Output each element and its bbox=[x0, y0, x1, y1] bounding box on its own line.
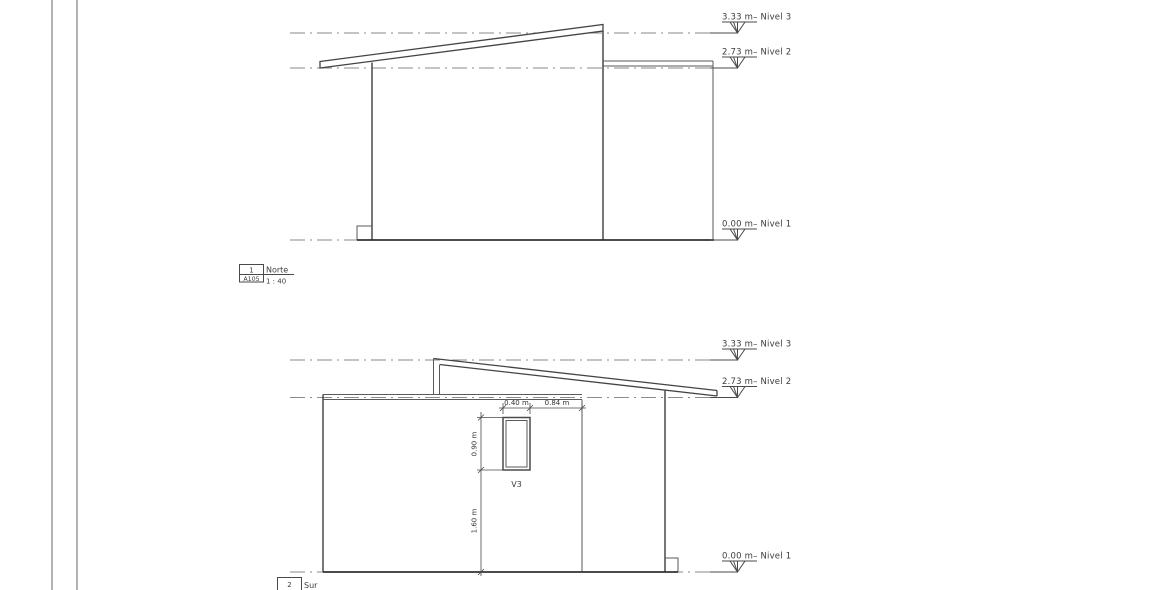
dim-window-offset: 0.84 m bbox=[545, 399, 570, 407]
sheet-border bbox=[52, 0, 77, 590]
sur-level-marker-3: 3.33 m– Nivel 3 bbox=[710, 340, 791, 361]
norte-level-1-label: 0.00 m– Nivel 1 bbox=[722, 220, 791, 230]
norte-level-marker-2: 2.73 m– Nivel 2 bbox=[710, 48, 791, 69]
window-v3-label: V3 bbox=[511, 480, 522, 489]
dim-sill-height: 1.60 m bbox=[471, 509, 479, 534]
elevations-canvas: 3.33 m– Nivel 3 2.73 m– Nivel 2 0.00 m– … bbox=[0, 0, 1165, 590]
sur-level-1-label: 0.00 m– Nivel 1 bbox=[722, 552, 791, 562]
norte-sheet-number: A105 bbox=[243, 276, 259, 283]
norte-detail-number: 1 bbox=[249, 267, 253, 275]
norte-elevation: 3.33 m– Nivel 3 2.73 m– Nivel 2 0.00 m– … bbox=[240, 13, 792, 286]
sur-view-title: 2 Sur bbox=[278, 578, 319, 590]
norte-level-3-label: 3.33 m– Nivel 3 bbox=[722, 13, 791, 23]
sur-dimensions: 0.40 m 0.84 m 0.90 m 1.60 m bbox=[471, 399, 587, 576]
sur-building-outline bbox=[323, 359, 717, 573]
drawing-sheet: 3.33 m– Nivel 3 2.73 m– Nivel 2 0.00 m– … bbox=[0, 0, 1165, 590]
sur-level-3-label: 3.33 m– Nivel 3 bbox=[722, 340, 791, 350]
norte-level-2-label: 2.73 m– Nivel 2 bbox=[722, 48, 791, 58]
sur-detail-number: 2 bbox=[287, 581, 291, 589]
norte-level-marker-3: 3.33 m– Nivel 3 bbox=[710, 13, 791, 34]
norte-building-outline bbox=[320, 25, 714, 241]
norte-view-scale: 1 : 40 bbox=[266, 278, 286, 286]
norte-level-marker-1: 0.00 m– Nivel 1 bbox=[710, 220, 791, 241]
norte-view-title: 1 A105 Norte 1 : 40 bbox=[240, 265, 295, 286]
window-v3: V3 bbox=[503, 418, 530, 490]
sur-level-marker-1: 0.00 m– Nivel 1 bbox=[710, 552, 791, 573]
sur-level-marker-2: 2.73 m– Nivel 2 bbox=[710, 377, 791, 398]
sur-level-2-label: 2.73 m– Nivel 2 bbox=[722, 377, 791, 387]
sur-elevation: V3 0.40 m 0.84 m 0.90 m 1.60 m bbox=[278, 340, 792, 590]
sur-view-name: Sur bbox=[304, 581, 318, 590]
dim-window-height: 0.90 m bbox=[471, 432, 479, 457]
norte-view-name: Norte bbox=[266, 266, 288, 275]
dim-window-width: 0.40 m bbox=[504, 399, 529, 407]
